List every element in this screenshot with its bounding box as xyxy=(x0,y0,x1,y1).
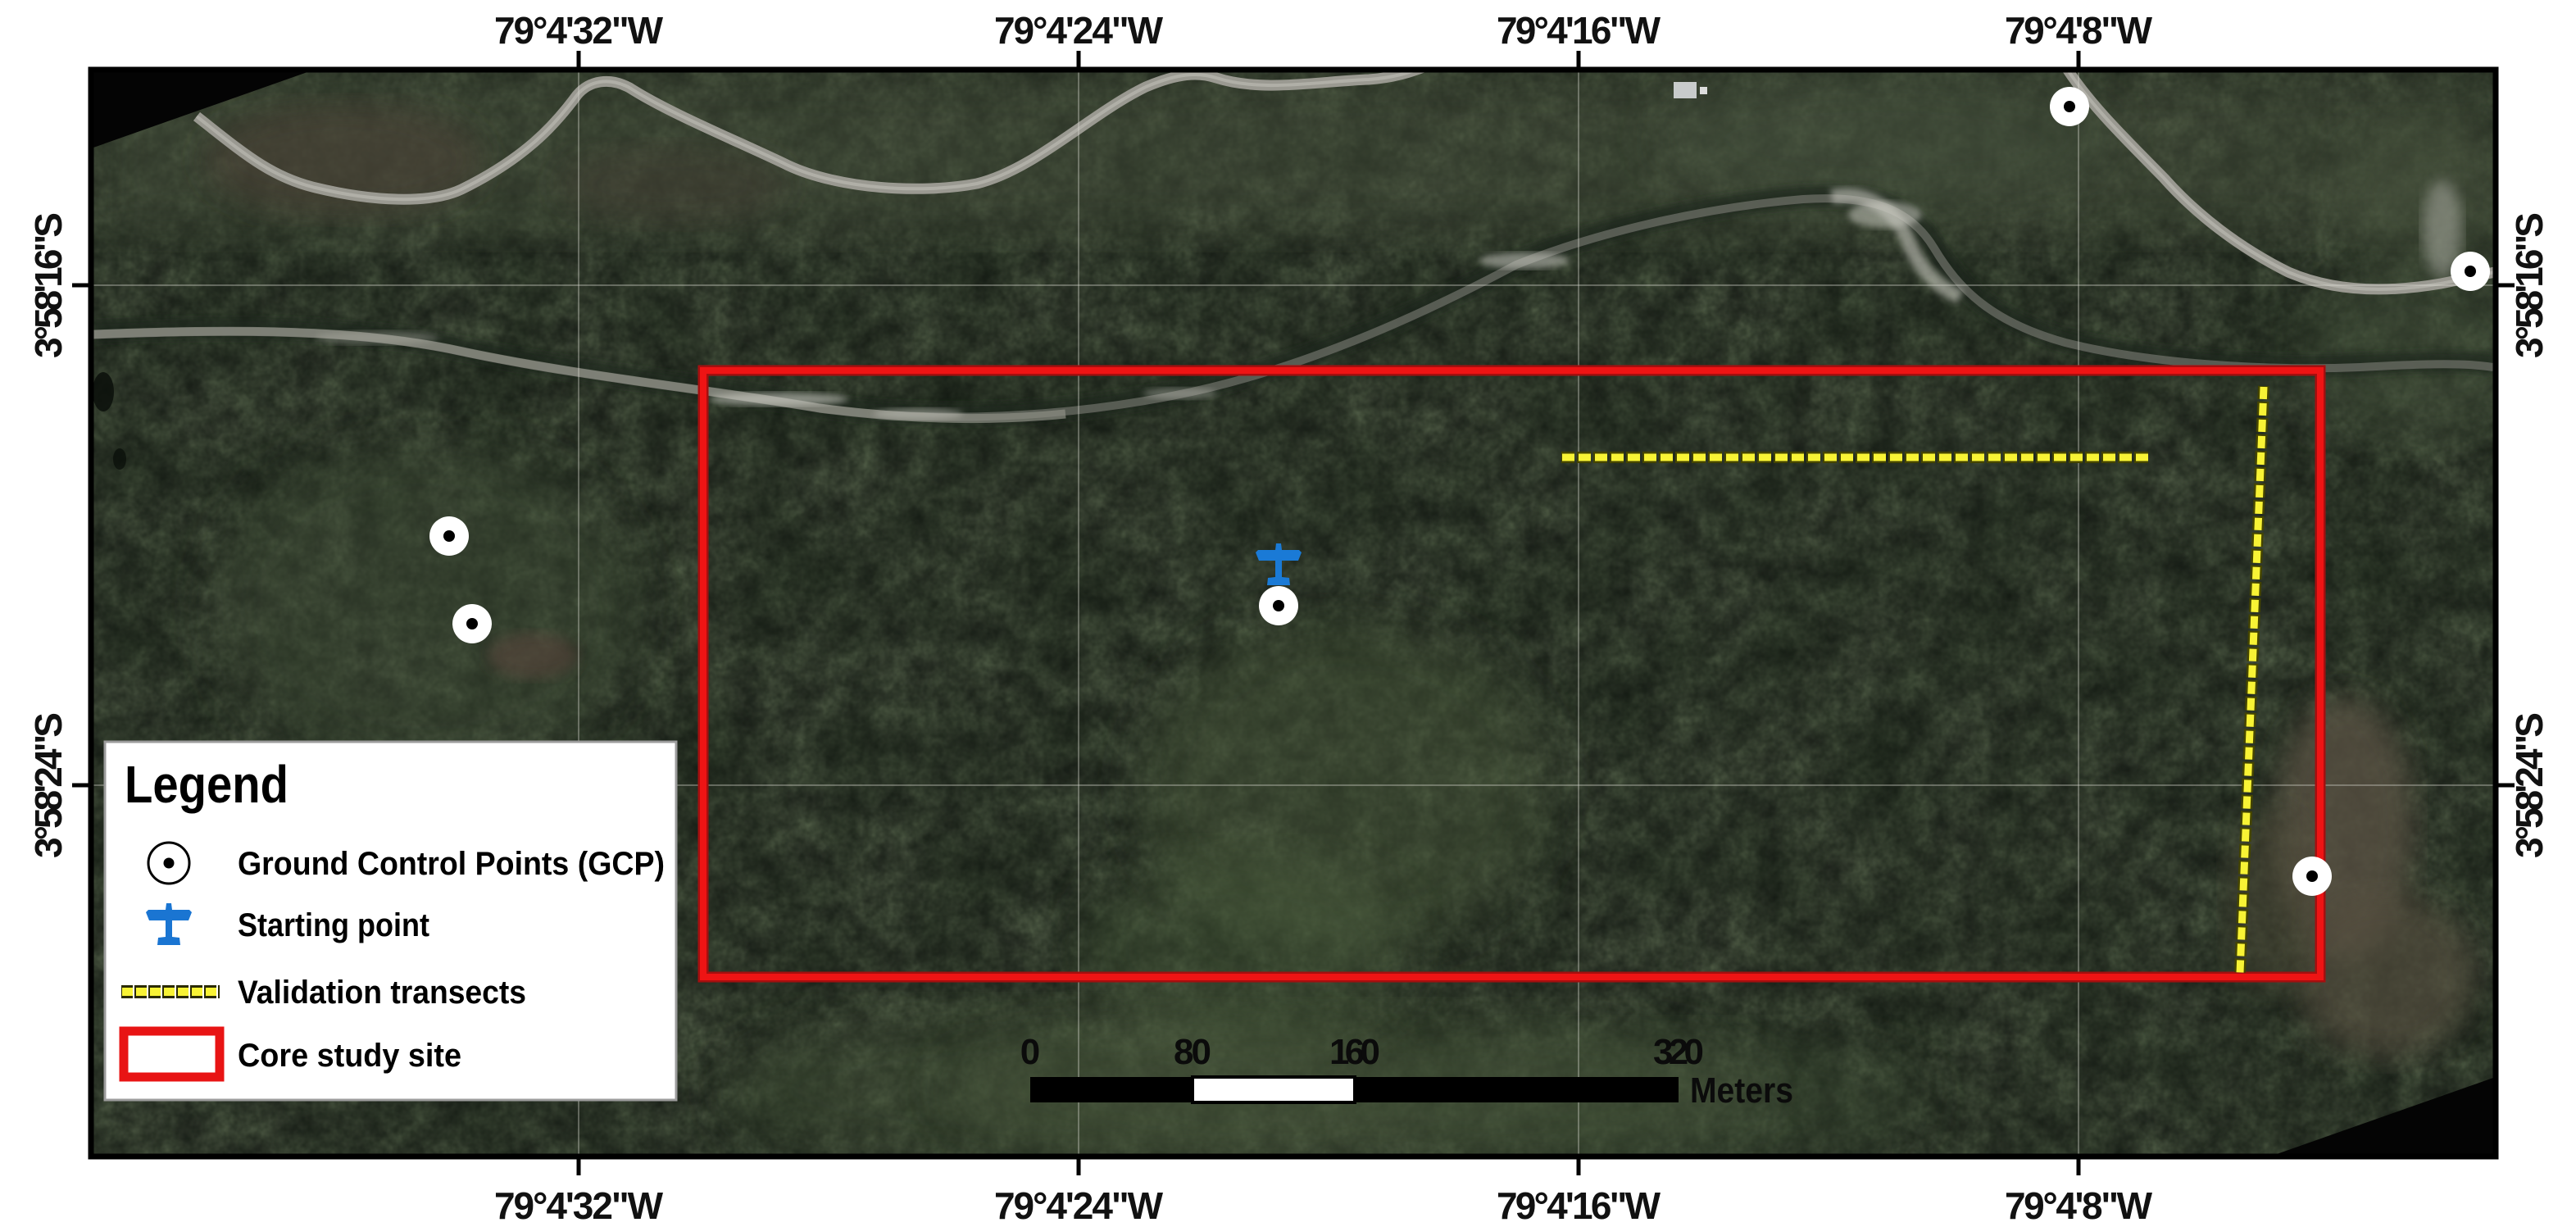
svg-text:79°4'24"W: 79°4'24"W xyxy=(994,9,1164,52)
svg-text:Validation transects: Validation transects xyxy=(238,975,526,1011)
svg-text:Core study site: Core study site xyxy=(238,1038,461,1074)
svg-text:79°4'8"W: 79°4'8"W xyxy=(2005,9,2153,52)
svg-text:3°58'16"S: 3°58'16"S xyxy=(27,212,70,358)
svg-text:79°4'32"W: 79°4'32"W xyxy=(494,9,664,52)
svg-text:Meters: Meters xyxy=(1690,1070,1793,1111)
svg-text:79°4'16"W: 79°4'16"W xyxy=(1497,1184,1661,1227)
svg-text:160: 160 xyxy=(1329,1032,1380,1072)
svg-text:3°58'16"S: 3°58'16"S xyxy=(2508,212,2551,358)
svg-text:3°58'24"S: 3°58'24"S xyxy=(2508,712,2551,858)
svg-text:79°4'16"W: 79°4'16"W xyxy=(1497,9,1661,52)
svg-text:79°4'32"W: 79°4'32"W xyxy=(494,1184,664,1227)
svg-text:Ground Control Points (GCP): Ground Control Points (GCP) xyxy=(238,846,665,882)
svg-text:80: 80 xyxy=(1174,1032,1211,1072)
svg-text:79°4'8"W: 79°4'8"W xyxy=(2005,1184,2153,1227)
svg-text:79°4'24"W: 79°4'24"W xyxy=(994,1184,1164,1227)
svg-text:0: 0 xyxy=(1020,1032,1040,1072)
svg-text:Starting point: Starting point xyxy=(238,907,429,943)
svg-text:320: 320 xyxy=(1653,1032,1704,1072)
svg-text:Legend: Legend xyxy=(125,755,288,814)
svg-text:3°58'24"S: 3°58'24"S xyxy=(27,712,70,858)
